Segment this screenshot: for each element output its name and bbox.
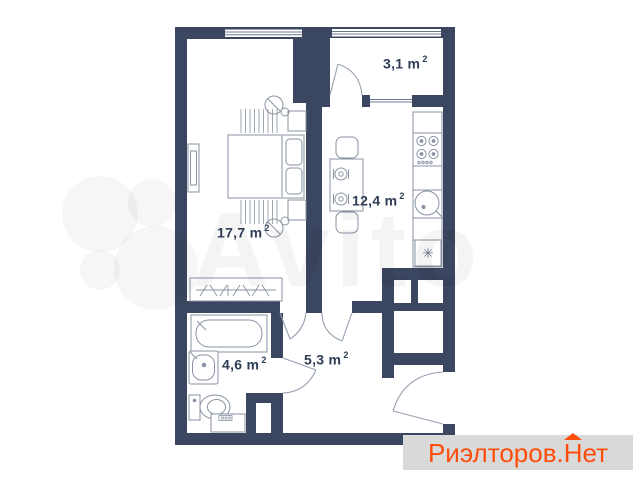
room-area-sup: 2 bbox=[261, 355, 266, 365]
kitchen-balcony-window bbox=[370, 97, 412, 106]
nightstand-top bbox=[288, 111, 306, 131]
room-area-sup: 2 bbox=[422, 54, 427, 64]
nightstand-bottom bbox=[288, 200, 306, 220]
room-area-sup: 2 bbox=[264, 223, 269, 233]
floor-plan-image: ✳ bbox=[0, 0, 640, 478]
room-area-value: 5,3 m bbox=[304, 352, 341, 368]
fridge-snowflake-icon: ✳ bbox=[422, 245, 434, 261]
chair-top bbox=[336, 137, 358, 158]
room-label-bedroom: 17,7 m2 bbox=[217, 224, 270, 241]
table-lamp-top-icon bbox=[265, 96, 289, 116]
realtor-logo-suffix: ет bbox=[583, 440, 609, 466]
room-area-value: 3,1 m bbox=[383, 56, 420, 72]
radiator-icon bbox=[188, 144, 199, 192]
room-area-value: 12,4 m bbox=[352, 193, 397, 209]
room-area-value: 17,7 m bbox=[217, 225, 262, 241]
pillow bbox=[286, 139, 302, 165]
balcony-door-arc bbox=[330, 64, 362, 95]
roof-icon bbox=[564, 433, 582, 440]
bedroom-furniture bbox=[188, 96, 306, 301]
dining-table-icon bbox=[330, 137, 363, 233]
kitchen-door-arc bbox=[322, 313, 352, 341]
bedroom-window bbox=[225, 30, 302, 38]
chair-bottom bbox=[336, 212, 358, 233]
balcony-window bbox=[332, 29, 441, 37]
room-area-sup: 2 bbox=[343, 350, 348, 360]
floor-plan-drawing: ✳ bbox=[0, 0, 640, 478]
realtor-logo: Риэлторов.Нет bbox=[403, 435, 633, 470]
washing-machine-icon bbox=[211, 414, 245, 432]
bathtub-icon bbox=[191, 315, 267, 352]
bedroom-door-arc bbox=[280, 313, 306, 339]
room-label-bathroom: 4,6 m2 bbox=[222, 356, 267, 373]
entrance-door-arc bbox=[393, 372, 443, 424]
room-label-kitchen: 12,4 m2 bbox=[352, 192, 405, 209]
hallway-closet bbox=[394, 280, 443, 353]
room-area-sup: 2 bbox=[399, 191, 404, 201]
wardrobe-icon bbox=[190, 278, 282, 301]
fridge-icon: ✳ bbox=[415, 240, 441, 266]
room-label-hallway: 5,3 m2 bbox=[304, 351, 349, 368]
kitchen-furniture: ✳ bbox=[330, 112, 443, 267]
washbasin-icon bbox=[189, 351, 218, 384]
realtor-logo-roofed-letter: Н bbox=[564, 440, 583, 466]
room-label-balcony: 3,1 m2 bbox=[383, 55, 428, 72]
pillow bbox=[286, 168, 302, 194]
realtor-logo-prefix: Риэлторов. bbox=[428, 440, 564, 466]
bed-icon bbox=[228, 135, 304, 198]
room-area-value: 4,6 m bbox=[222, 357, 259, 373]
